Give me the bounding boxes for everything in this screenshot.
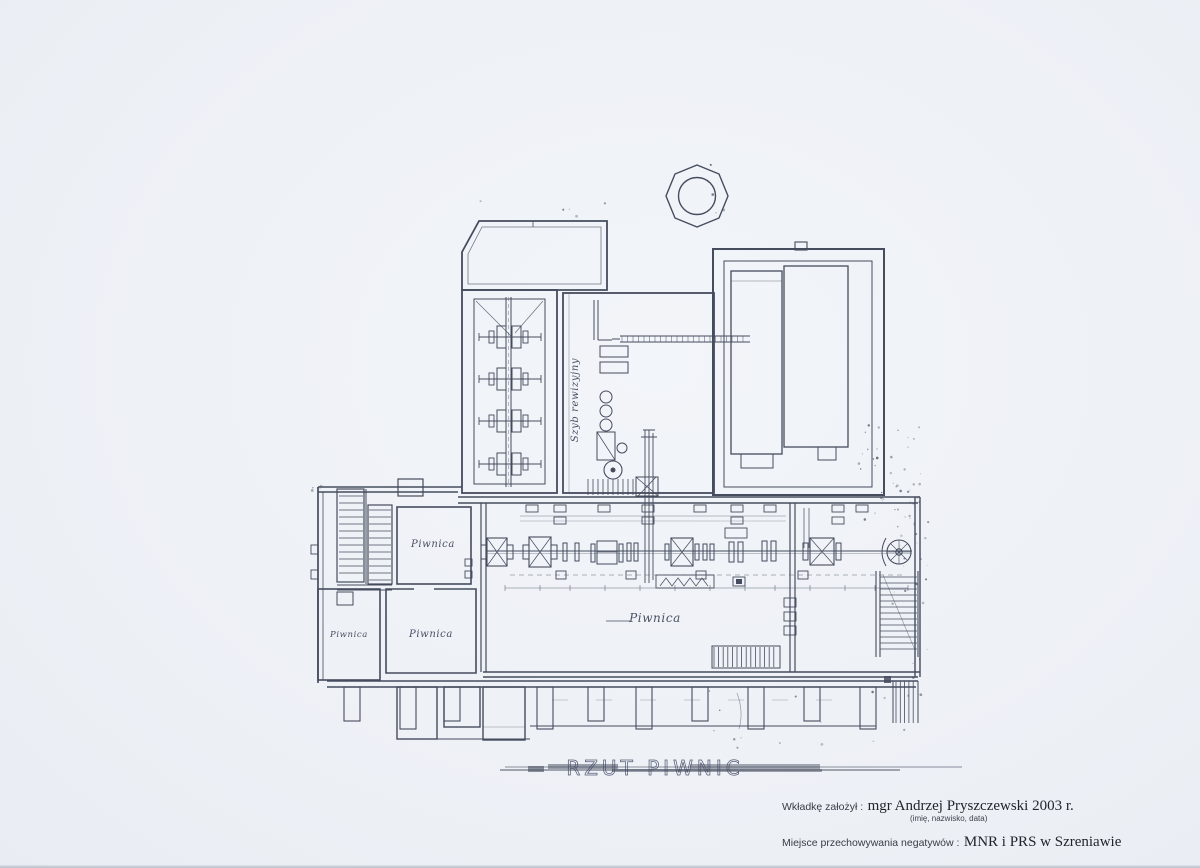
drawing-title: RZUT PIWNIC (500, 756, 962, 780)
room-label-upper: Piwnica (410, 539, 455, 550)
scanned-document-page: Szyb rewizyjny Piwnica Piwnica Piwnica (0, 0, 1200, 868)
west-wing (311, 479, 476, 683)
millstone-room (462, 290, 557, 493)
storage-row: Miejsce przechowywania negatywów : MNR i… (782, 833, 1122, 851)
storage-label: Miejsce przechowywania negatywów : (782, 837, 959, 849)
east-staircase (876, 571, 918, 657)
inserted-by-value: mgr Andrzej Pryszczewski 2003 r. (868, 798, 1074, 814)
generated-detail (339, 326, 917, 729)
scanned-floor-plan: Szyb rewizyjny Piwnica Piwnica Piwnica (0, 0, 1200, 868)
boiler-room (713, 242, 884, 495)
chute-shaft (641, 430, 657, 583)
footer-annotation: Wkładkę założył : mgr Andrzej Pryszczews… (782, 797, 1122, 851)
room-label-west: Piwnica (329, 630, 368, 640)
northwest-wing (462, 221, 607, 290)
transmission-shaft (481, 528, 912, 567)
main-hall-label: Piwnica (628, 611, 681, 625)
room-label-mid: Piwnica (408, 629, 453, 640)
inserted-by-row: Wkładkę założył : mgr Andrzej Pryszczews… (782, 797, 1122, 815)
storage-value: MNR i PRS w Szreniawie (964, 834, 1122, 850)
main-hall (458, 497, 920, 677)
chimney-octagon (666, 165, 728, 227)
inserted-by-hint: (imię, nazwisko, data) (910, 814, 1122, 823)
vertical-room-note: Szyb rewizyjny (570, 358, 581, 442)
inserted-by-label: Wkładkę założył : (782, 801, 863, 813)
hall-divider-wall (790, 503, 795, 672)
double-staircase (337, 489, 392, 605)
elevator-room (563, 293, 750, 583)
